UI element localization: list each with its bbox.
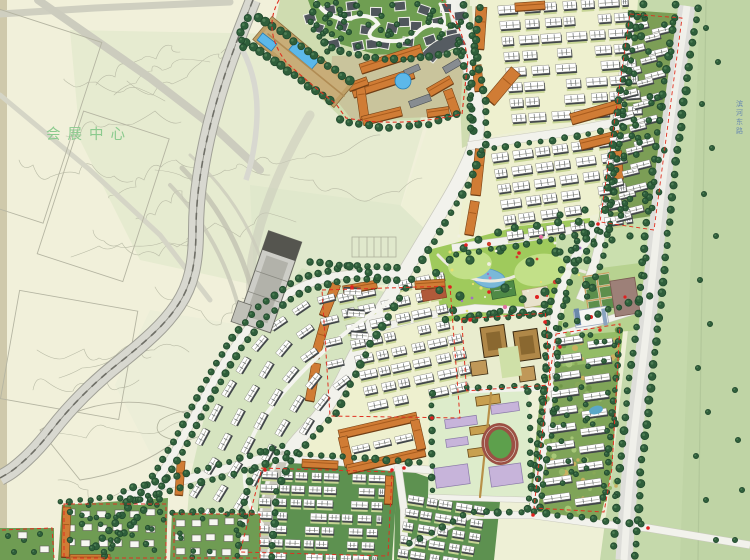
svg-text:滨河东路: 滨河东路 [736, 99, 744, 136]
svg-text:会展中心: 会展中心 [46, 126, 132, 143]
